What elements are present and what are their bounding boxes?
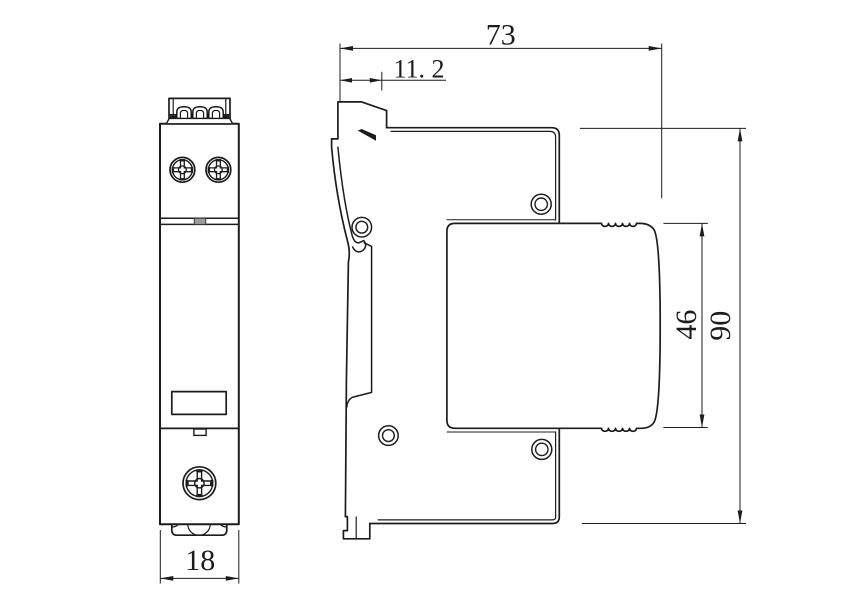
screw-boss-top-right bbox=[531, 194, 551, 214]
bottom-plate-inner bbox=[378, 432, 555, 520]
divider-tab bbox=[194, 429, 206, 435]
boss-outer bbox=[352, 217, 372, 237]
rail-channel-edge bbox=[347, 243, 372, 407]
arrowhead bbox=[700, 415, 705, 428]
terminal-block bbox=[166, 98, 232, 123]
slot-tip bbox=[208, 167, 210, 173]
front-view bbox=[160, 98, 239, 535]
dimension-clip-offset-11-2: 11. 2 bbox=[340, 54, 446, 90]
side-view bbox=[332, 102, 661, 539]
terminal-contact-2 bbox=[193, 107, 207, 119]
dimension-value: 18 bbox=[185, 544, 215, 577]
slot-tip bbox=[180, 159, 186, 161]
arrowhead bbox=[226, 576, 239, 581]
slot-tip bbox=[172, 167, 174, 173]
slot-tip bbox=[196, 495, 203, 497]
boss-outer bbox=[532, 439, 552, 459]
arrowhead bbox=[649, 46, 662, 51]
dimension-module-height-46: 46 bbox=[663, 223, 707, 427]
dimension-total-depth-73: 73 bbox=[340, 18, 662, 198]
arrowhead bbox=[700, 223, 705, 236]
divider-tab bbox=[194, 218, 205, 224]
slot-tip bbox=[196, 469, 203, 471]
arrowhead bbox=[340, 46, 353, 51]
rail-catch-top bbox=[358, 129, 376, 141]
slot-tip bbox=[211, 480, 213, 487]
bottom-plate-outline bbox=[370, 429, 560, 524]
plug-in-module bbox=[447, 223, 660, 431]
terminal-contact-3 bbox=[209, 107, 223, 119]
foot-outline bbox=[172, 524, 227, 535]
upper-screw-right bbox=[206, 157, 231, 182]
slot-tip bbox=[191, 167, 193, 173]
foot-notch-arc bbox=[188, 524, 210, 535]
terminal-contact-1 bbox=[177, 107, 191, 119]
contact-outer bbox=[209, 107, 223, 119]
slot-tip bbox=[216, 159, 222, 161]
arrowhead bbox=[160, 576, 173, 581]
label-window bbox=[172, 392, 226, 415]
arrowhead bbox=[738, 128, 743, 141]
arrowhead bbox=[340, 78, 352, 83]
contact-outer bbox=[193, 107, 207, 119]
terminal-collar bbox=[166, 118, 232, 123]
arrowhead bbox=[370, 78, 382, 83]
upper-screw-left bbox=[170, 157, 195, 182]
slot-tip bbox=[180, 178, 186, 180]
front-body-outline bbox=[160, 124, 239, 524]
boss-outer bbox=[379, 426, 399, 446]
drawing-canvas: 73 11. 2 46 90 18 bbox=[0, 0, 842, 596]
lower-screw bbox=[183, 467, 216, 500]
dimension-value: 90 bbox=[704, 311, 737, 341]
screw-boss-bottom-right bbox=[532, 439, 552, 459]
screw-boss-top-left bbox=[352, 217, 372, 237]
boss-outer bbox=[531, 194, 551, 214]
din-foot bbox=[172, 524, 227, 535]
dimension-body-width-18: 18 bbox=[160, 530, 239, 584]
dimension-value: 73 bbox=[486, 18, 516, 51]
screw-boss-bottom-left bbox=[379, 426, 399, 446]
slot-tip bbox=[227, 167, 229, 173]
dimension-value: 11. 2 bbox=[393, 54, 444, 83]
contact-outer bbox=[177, 107, 191, 119]
technical-drawing: 73 11. 2 46 90 18 bbox=[0, 0, 842, 596]
arrowhead bbox=[738, 511, 743, 524]
slot-tip bbox=[216, 178, 222, 180]
slot-tip bbox=[186, 480, 188, 487]
dimension-value: 46 bbox=[670, 310, 703, 340]
